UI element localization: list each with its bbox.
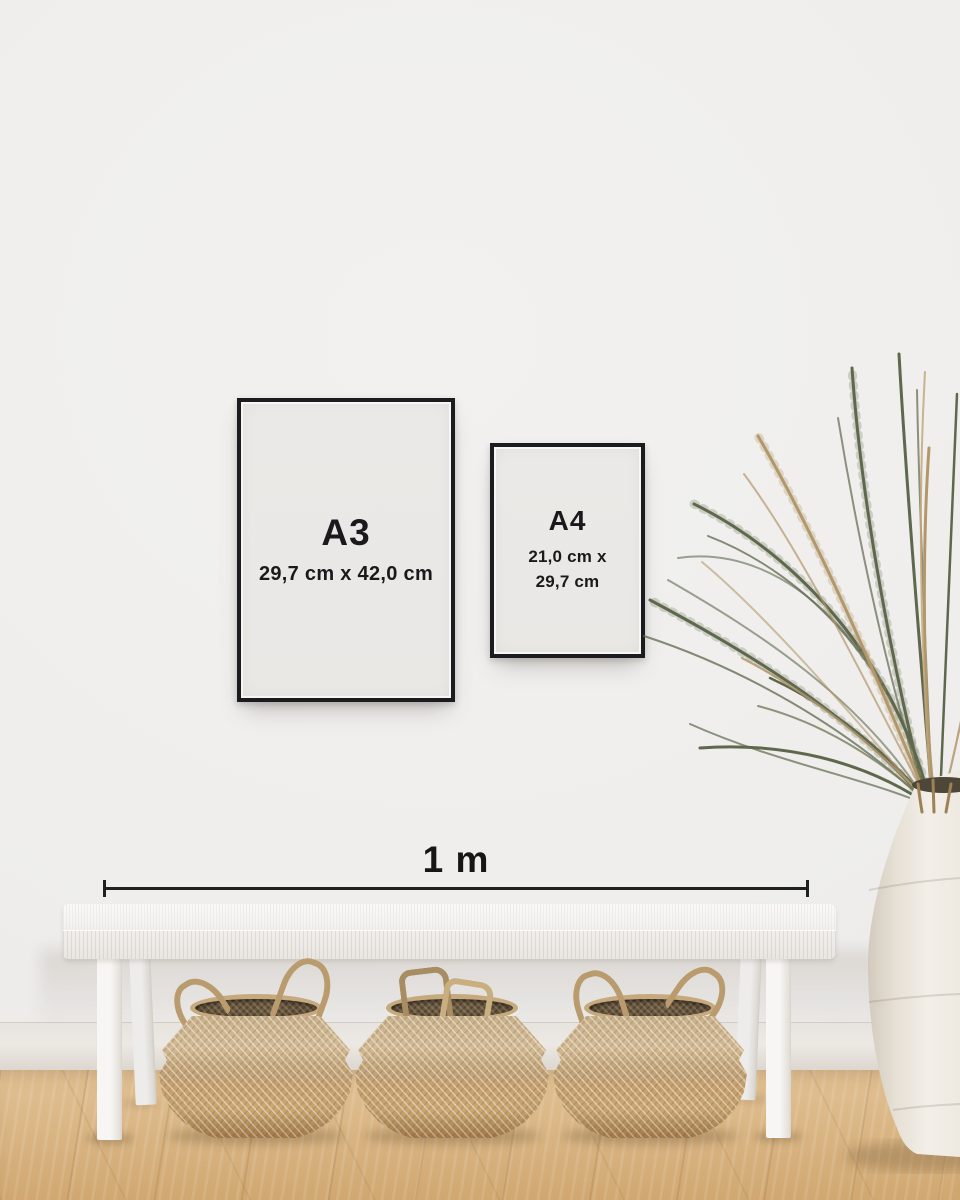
frame-a3-dimensions: 29,7 cm x 42,0 cm [259,563,433,586]
bench-seat [63,904,836,959]
palm-fronds [644,354,960,806]
seagrass-basket-left [159,958,353,1142]
frame-size-guide-scene: A3 29,7 cm x 42,0 cm A4 21,0 cm x 29,7 c… [0,0,960,1200]
basket-body [159,1016,353,1138]
frame-a3: A3 29,7 cm x 42,0 cm [237,398,455,702]
basket-body [553,1016,747,1138]
seagrass-basket-right [553,958,747,1142]
bench-leg-front-left [97,950,122,1140]
plant-stems [918,780,951,812]
frame-a3-paper: A3 29,7 cm x 42,0 cm [241,402,451,698]
basket-body [355,1016,549,1138]
frame-a4-dimensions: 21,0 cm x 29,7 cm [528,544,606,595]
scale-bar-line [103,887,809,890]
frame-a4-size-label: A4 [549,507,587,535]
frame-a4: A4 21,0 cm x 29,7 cm [490,443,645,658]
frame-a4-dimensions-line2: 29,7 cm [536,572,600,591]
bench-leg-front-right [766,950,791,1138]
scale-bar-label: 1 m [356,839,556,881]
seagrass-basket-middle [355,958,549,1142]
frame-a4-dimensions-line1: 21,0 cm x [528,547,606,566]
vase-mouth [912,777,960,793]
frame-a4-paper: A4 21,0 cm x 29,7 cm [494,447,641,654]
frame-a3-size-label: A3 [321,514,370,551]
